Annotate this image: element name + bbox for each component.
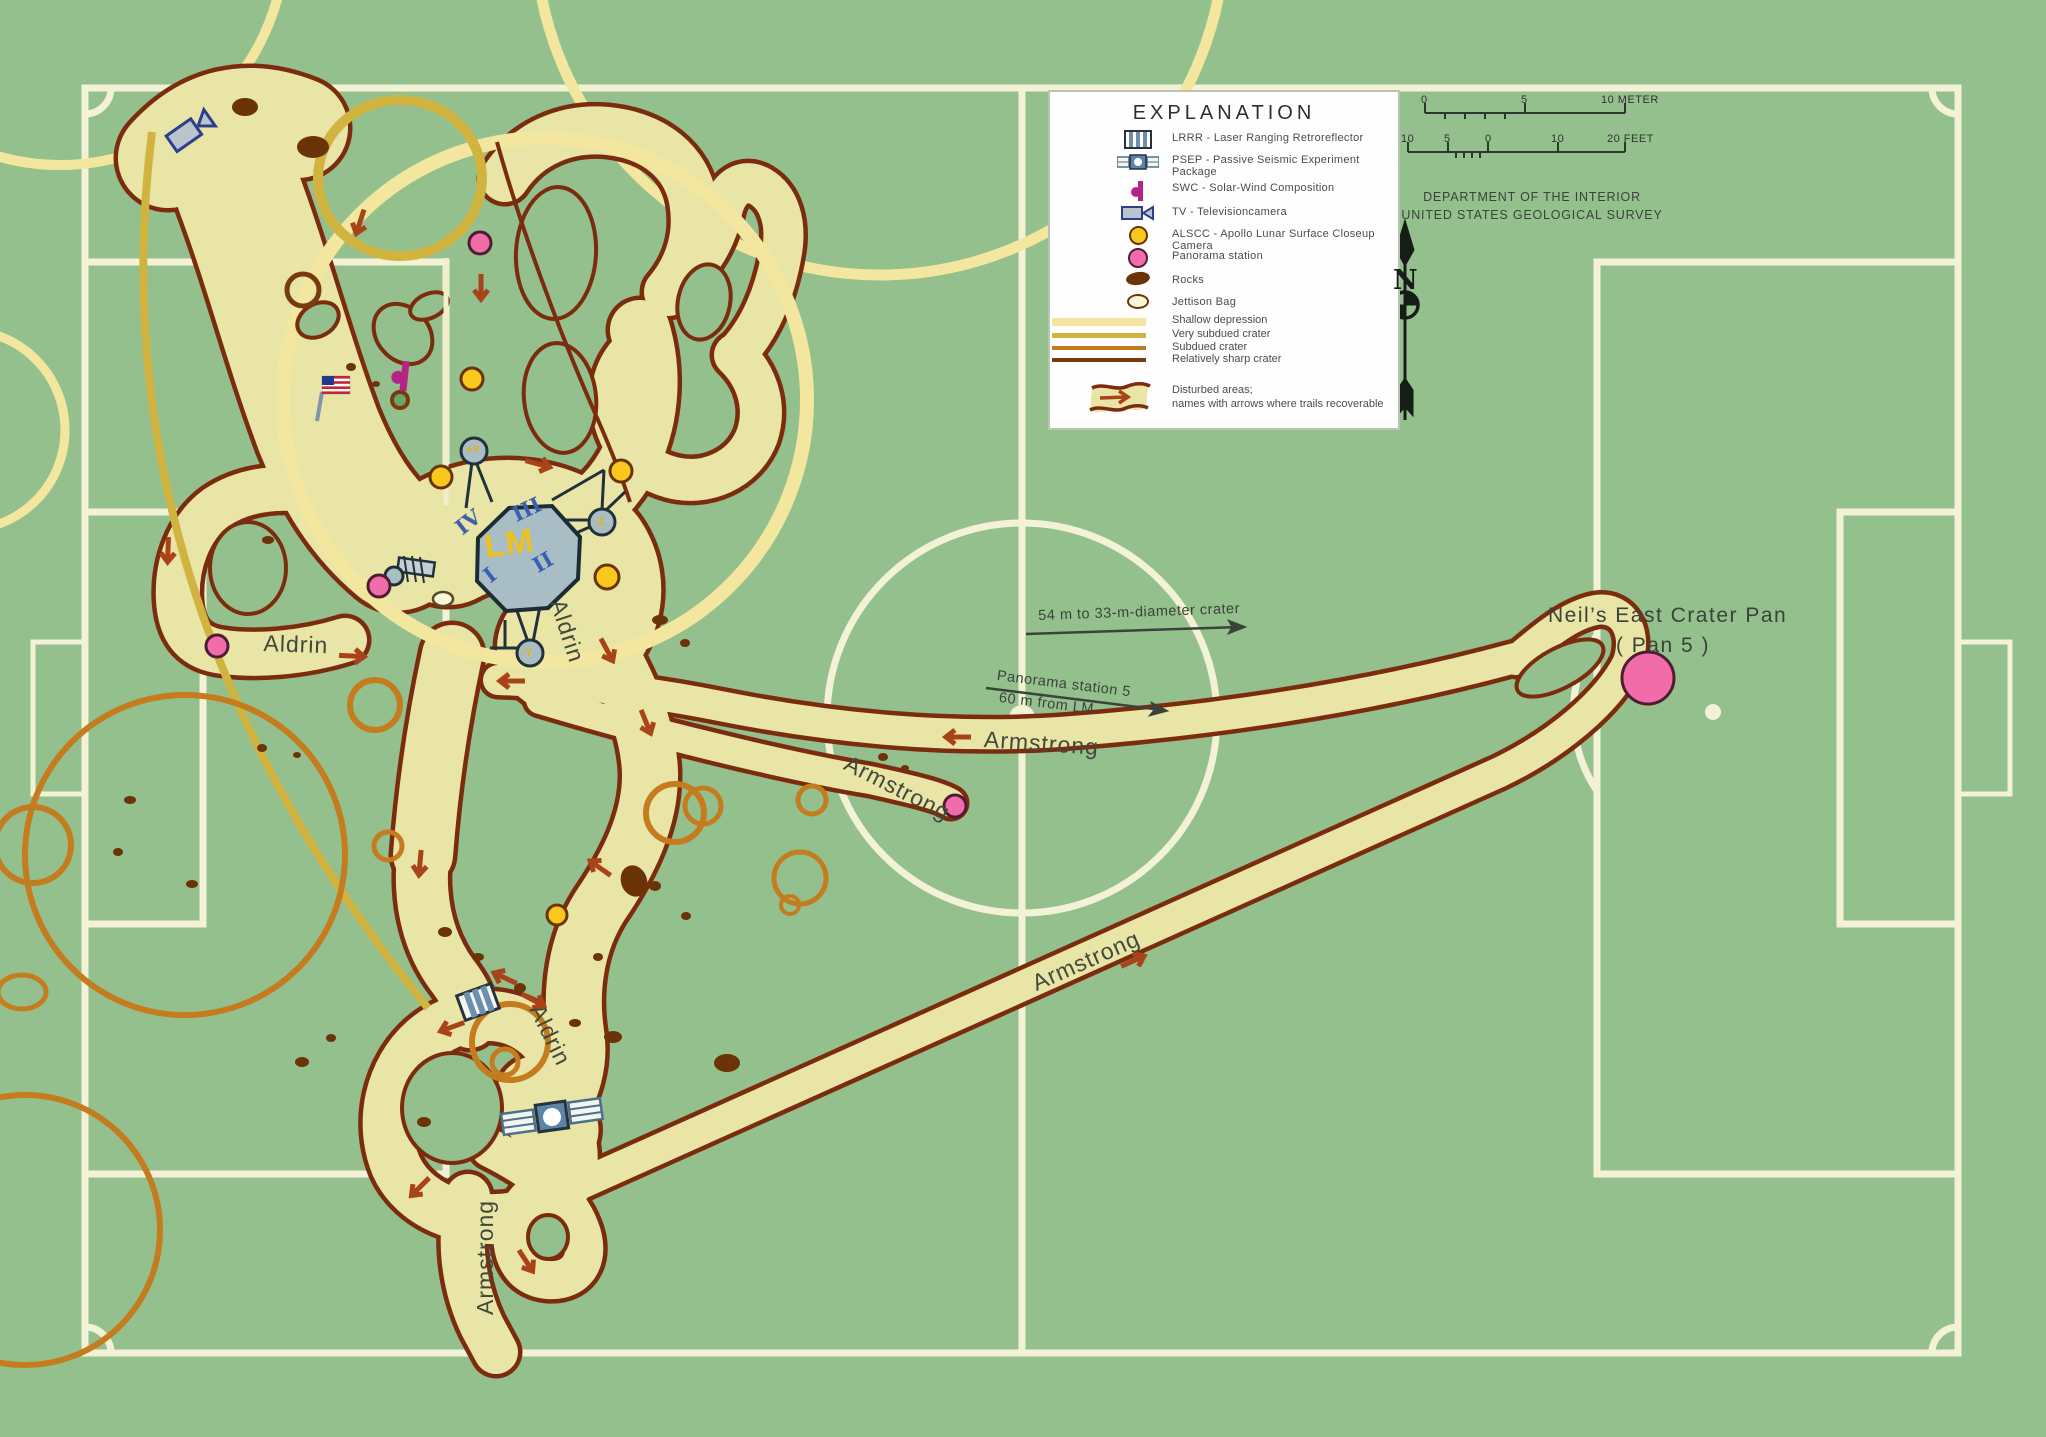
disturbed-areas-icon <box>1088 378 1152 425</box>
feet-tick-0: 0 <box>1485 133 1492 145</box>
psep-icon <box>1112 152 1164 172</box>
lm-pad-label-py: +Y <box>466 444 481 456</box>
left-goal <box>33 642 85 794</box>
jettison-bag <box>433 592 453 606</box>
right-penalty-area <box>1597 262 1958 1174</box>
band-shallow-depression <box>1052 318 1146 326</box>
legend-item-panorama: Panorama station <box>1050 248 1398 268</box>
meter-end-label: 10 METER <box>1601 94 1659 106</box>
east-crater-pan-label-line2: ( Pan 5 ) <box>1548 634 1778 658</box>
east-crater-pan-label-line1: Neil’s East Crater Pan <box>1548 604 1778 628</box>
rock-icon <box>1125 270 1151 286</box>
lrrr-icon <box>1124 130 1152 149</box>
band-subdued <box>1052 346 1146 350</box>
feet-tick-10l: 10 <box>1401 133 1414 145</box>
feet-tick-10r: 10 <box>1551 133 1564 145</box>
panorama-station-icon <box>1128 248 1148 268</box>
legend-item-lrrr: LRRR - Laser Ranging Retroreflector <box>1050 130 1398 150</box>
legend-item-psep: PSEP - Passive Seismic Experiment Packag… <box>1050 152 1398 172</box>
agency-line1: DEPARTMENT OF THE INTERIOR <box>1352 190 1712 204</box>
right-penalty-spot <box>1705 704 1721 720</box>
lm-label: LM <box>482 521 536 566</box>
meter-tick-5: 5 <box>1521 94 1528 106</box>
lm-pad-label-mz: -Z <box>594 516 605 528</box>
legend-item-rocks: Rocks <box>1050 272 1398 292</box>
jettison-bag-icon <box>1127 294 1149 309</box>
legend-title: EXPLANATION <box>1050 102 1398 125</box>
legend-panel: EXPLANATION LRRR - Laser Ranging Retrore… <box>1048 90 1400 430</box>
swc-icon <box>1112 180 1164 202</box>
apollo11-traverse-map: EXPLANATION LRRR - Laser Ranging Retrore… <box>0 0 2046 1437</box>
band-sharp <box>1052 358 1146 362</box>
feet-end-label: 20 FEET <box>1607 133 1654 145</box>
legend-item-alscc: ALSCC - Apollo Lunar Surface Closeup Cam… <box>1050 226 1398 246</box>
right-goal <box>1958 642 2010 794</box>
map-graphics <box>0 0 2046 1437</box>
legend-item-tv: TV - Televisioncamera <box>1050 204 1398 224</box>
north-label: N <box>1393 265 1418 296</box>
lm-pad-label-my: -Y <box>521 647 533 659</box>
trail-label-armstrong-south: Armstrong <box>472 1200 499 1315</box>
meter-tick-0: 0 <box>1421 94 1428 106</box>
legend-item-jettison: Jettison Bag <box>1050 294 1398 314</box>
tv-icon <box>1112 204 1164 222</box>
swc-icon <box>390 360 410 392</box>
scale-bars <box>1408 103 1625 158</box>
right-goal-area <box>1840 512 1958 924</box>
agency-line2: UNITED STATES GEOLOGICAL SURVEY <box>1352 208 1712 222</box>
band-very-subdued <box>1052 333 1146 338</box>
alscc-icon <box>1129 226 1148 245</box>
pan5-station <box>1622 652 1674 704</box>
trail-label-aldrin-west: Aldrin <box>263 630 329 659</box>
legend-item-swc: SWC - Solar-Wind Composition <box>1050 180 1398 200</box>
feet-tick-5: 5 <box>1444 133 1451 145</box>
